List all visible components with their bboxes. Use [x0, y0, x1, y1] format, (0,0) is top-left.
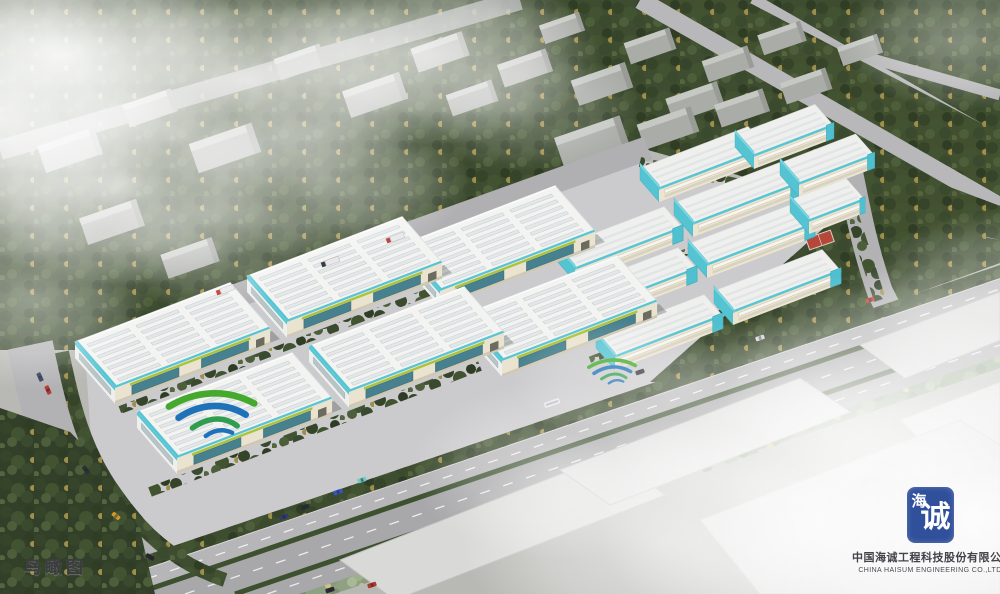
rendering-scene — [0, 0, 1000, 594]
aerial-rendering-canvas: 鸟瞰图 海 诚 中国海诚工程科技股份有限公司 CHINA HAISUM ENGI… — [0, 0, 1000, 594]
view-label: 鸟瞰图 — [24, 553, 87, 578]
company-name-cn: 中国海诚工程科技股份有限公司 — [852, 549, 1000, 565]
company-logo-block: 海 诚 中国海诚工程科技股份有限公司 CHINA HAISUM ENGINEER… — [852, 487, 1000, 574]
haisum-seal-icon: 海 诚 — [907, 487, 954, 543]
company-name-en: CHINA HAISUM ENGINEERING CO.,LTD — [852, 567, 1000, 574]
seal-char: 诚 — [921, 503, 951, 533]
